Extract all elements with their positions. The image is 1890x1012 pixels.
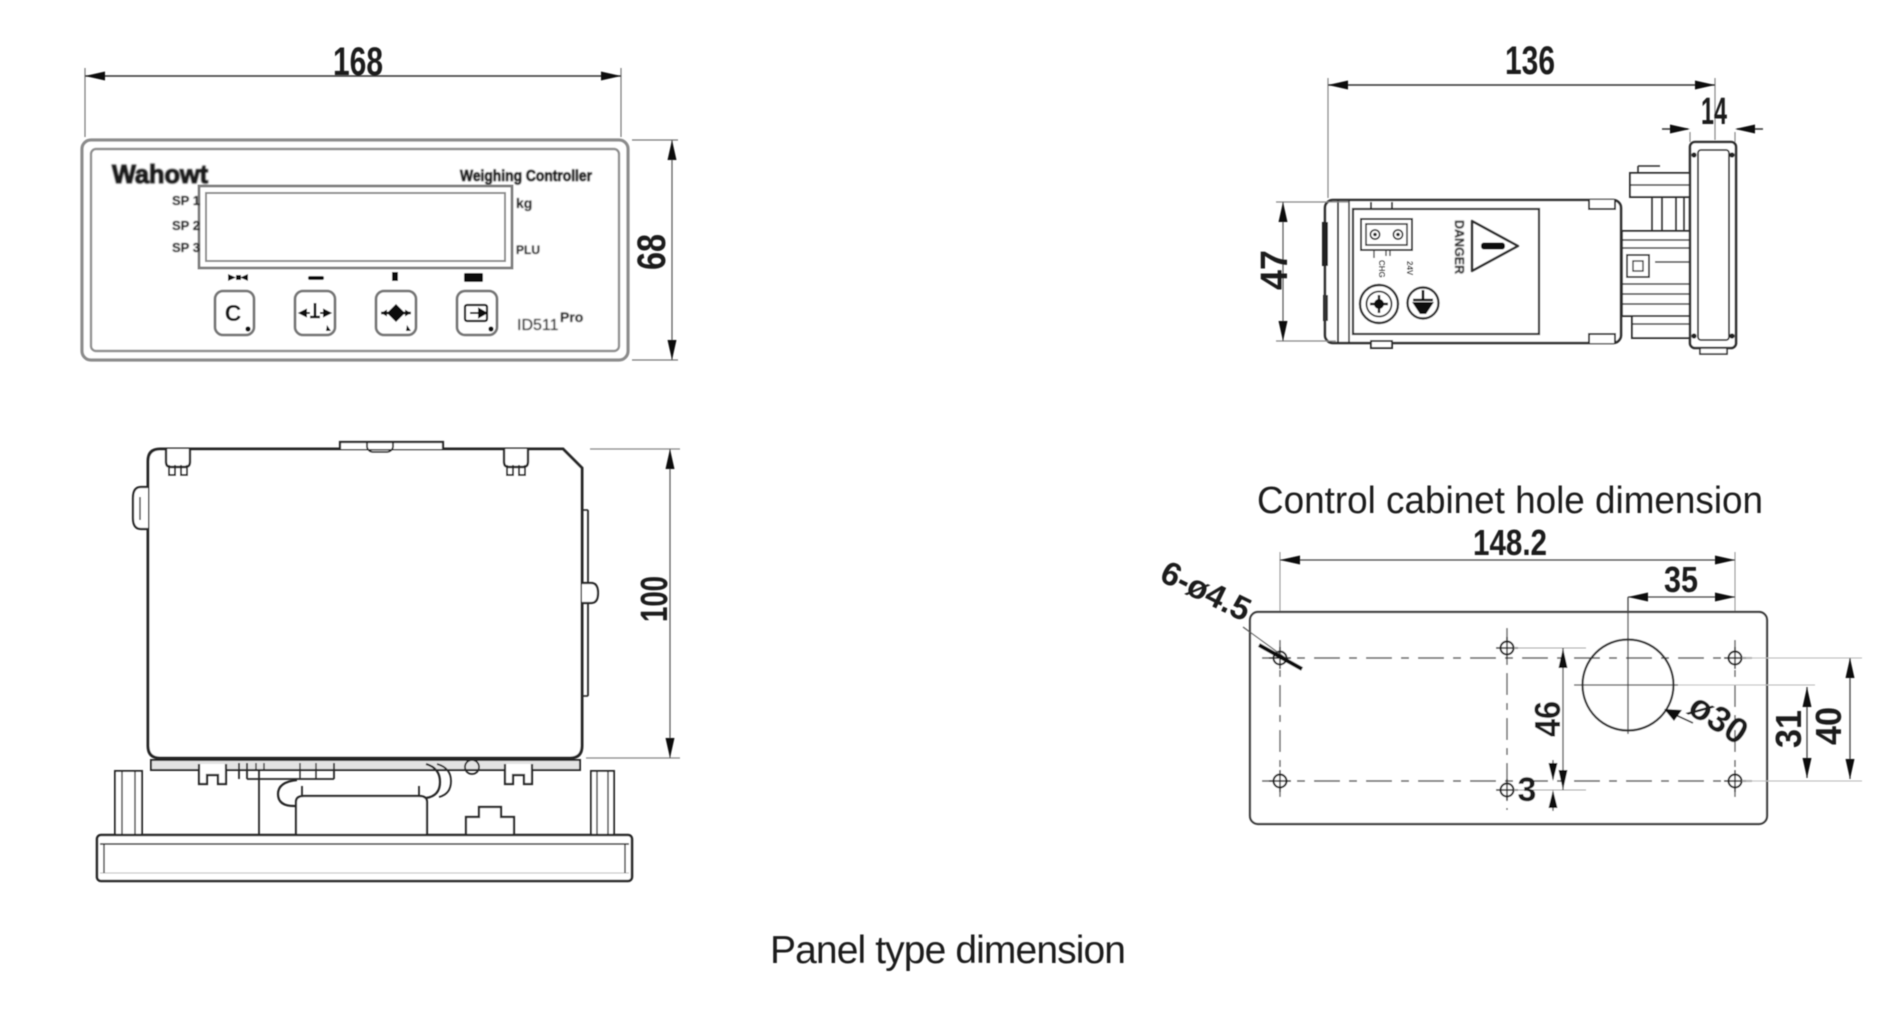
svg-text:Control cabinet hole dimension: Control cabinet hole dimension: [1257, 480, 1763, 522]
svg-text:Weighing Controller: Weighing Controller: [460, 168, 592, 185]
svg-text:ID511: ID511: [517, 317, 559, 334]
svg-text:136: 136: [1505, 39, 1555, 83]
svg-text:PLU: PLU: [516, 243, 540, 257]
svg-text:14: 14: [1701, 91, 1727, 133]
svg-text:47: 47: [1254, 250, 1296, 290]
svg-text:24V: 24V: [1405, 261, 1414, 276]
svg-text:40: 40: [1808, 707, 1849, 745]
svg-text:CHG: CHG: [1377, 260, 1386, 278]
svg-text:DANGER: DANGER: [1452, 220, 1466, 274]
svg-text:3: 3: [1518, 771, 1537, 809]
svg-text:C: C: [225, 300, 242, 326]
svg-text:46: 46: [1527, 701, 1568, 737]
svg-text:6-ø4.5: 6-ø4.5: [1155, 553, 1257, 628]
svg-text:68: 68: [630, 234, 674, 270]
svg-text:31: 31: [1768, 710, 1809, 748]
svg-text:SP 2: SP 2: [172, 218, 200, 233]
svg-text:35: 35: [1664, 559, 1698, 600]
svg-text:100: 100: [634, 576, 676, 622]
svg-text:kg: kg: [516, 195, 532, 211]
svg-text:Panel type dimension: Panel type dimension: [770, 929, 1126, 972]
svg-text:Pro: Pro: [560, 309, 583, 325]
svg-text:SP 1: SP 1: [172, 193, 200, 208]
svg-text:SP 3: SP 3: [172, 240, 200, 255]
svg-text:Wahowt: Wahowt: [112, 159, 208, 189]
svg-text:168: 168: [333, 40, 383, 84]
svg-text:148.2: 148.2: [1473, 522, 1547, 563]
